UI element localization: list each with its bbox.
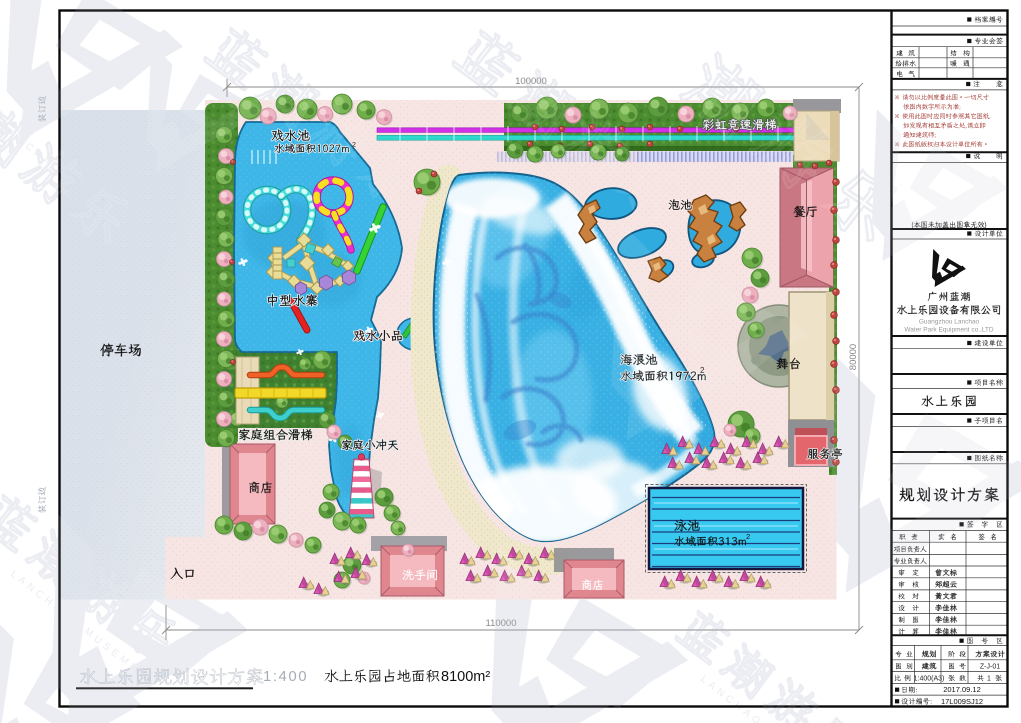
- svg-text:17L009SJ12: 17L009SJ12: [941, 697, 983, 706]
- svg-text:2: 2: [746, 532, 750, 541]
- svg-text:8100m²: 8100m²: [441, 669, 490, 685]
- svg-text:Guangzhou Lanchao: Guangzhou Lanchao: [919, 319, 980, 326]
- svg-text:Z-J-01: Z-J-01: [980, 664, 1000, 671]
- svg-text:80000: 80000: [848, 344, 859, 370]
- svg-text:1: 1: [987, 675, 991, 682]
- svg-text:2017.09.12: 2017.09.12: [943, 685, 981, 694]
- svg-text:1:400: 1:400: [263, 668, 308, 685]
- svg-text:1:400(A3): 1:400(A3): [914, 675, 945, 682]
- svg-text:Water Park Equipment co.,LTD: Water Park Equipment co.,LTD: [904, 327, 994, 334]
